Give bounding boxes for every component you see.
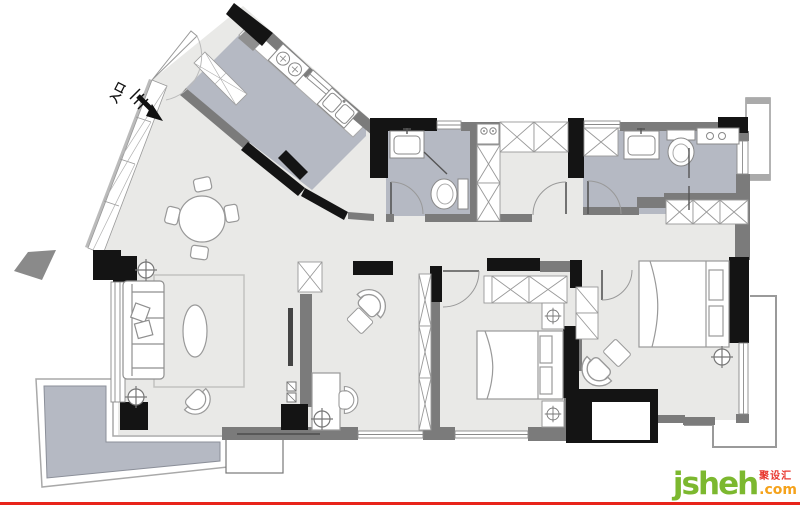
bathroom-sink — [390, 128, 424, 158]
bathroom-window — [437, 121, 461, 129]
right-wall-window — [737, 141, 748, 174]
master-toilet — [667, 130, 695, 166]
master-wardrobe-row — [666, 200, 748, 224]
bedroom-bed — [477, 331, 563, 399]
entry-label: 入口 — [107, 80, 129, 106]
study-bookshelf — [419, 274, 431, 430]
tv-wall — [300, 294, 312, 407]
watermark-logo: jsheh 聚设汇 .com — [673, 469, 797, 500]
dining-table — [179, 196, 225, 242]
sofa — [123, 281, 164, 379]
bedroom-wardrobe-row — [484, 276, 567, 303]
master-bathroom-window — [584, 121, 620, 128]
master-bed — [639, 261, 729, 347]
master-bathroom-sink — [624, 128, 659, 159]
logo-brand-text: jsheh — [673, 469, 757, 500]
neighbor-wall-fragment — [14, 250, 56, 280]
bay-platform — [592, 402, 650, 440]
washing-machine — [477, 124, 499, 144]
bay-window — [746, 98, 770, 180]
logo-chinese-text: 聚设汇 — [759, 472, 797, 482]
tv — [288, 308, 293, 366]
floor-plan-drawing: 入口 — [0, 0, 800, 505]
side-terrace — [226, 436, 283, 473]
floor-plan-screenshot: 入口 jsheh 聚设汇 .com — [0, 0, 800, 505]
bathroom-toilet — [431, 179, 468, 209]
study-window — [358, 431, 423, 438]
master-bedroom-window — [739, 343, 748, 414]
shower-counter — [697, 128, 739, 144]
shoe-cabinet — [576, 287, 598, 339]
tv-column-cabinet — [298, 262, 322, 292]
coffee-table — [183, 305, 207, 357]
logo-tld-text: .com — [759, 483, 797, 497]
bedroom-window — [455, 431, 528, 438]
master-bathroom-cabinet — [584, 128, 618, 156]
